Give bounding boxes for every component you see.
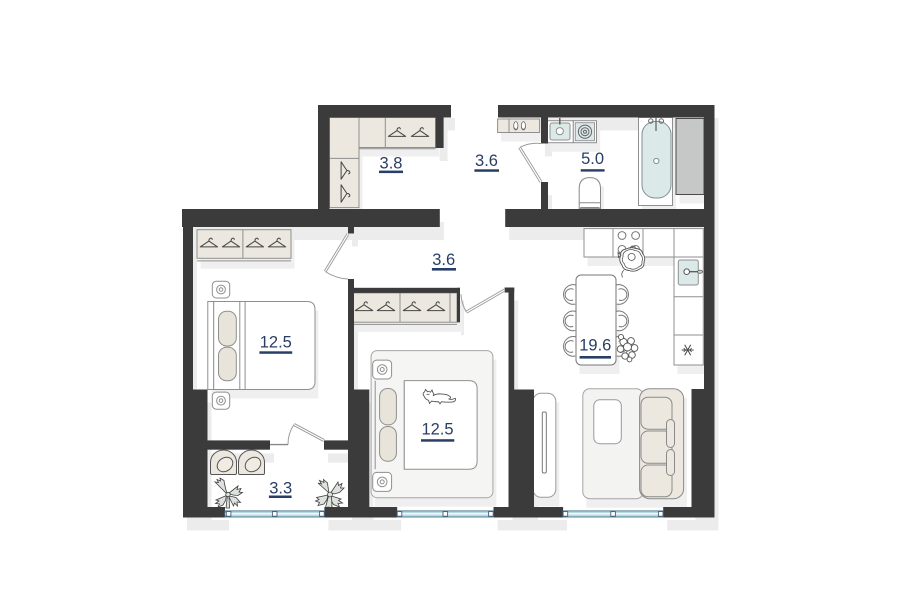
svg-text:3.6: 3.6	[432, 251, 455, 269]
svg-text:5.0: 5.0	[581, 150, 604, 168]
svg-text:3.6: 3.6	[475, 152, 498, 170]
svg-text:19.6: 19.6	[579, 336, 611, 354]
svg-text:12.5: 12.5	[421, 420, 453, 438]
svg-text:12.5: 12.5	[260, 333, 292, 351]
svg-text:3.8: 3.8	[380, 154, 403, 172]
svg-text:3.3: 3.3	[269, 480, 292, 498]
